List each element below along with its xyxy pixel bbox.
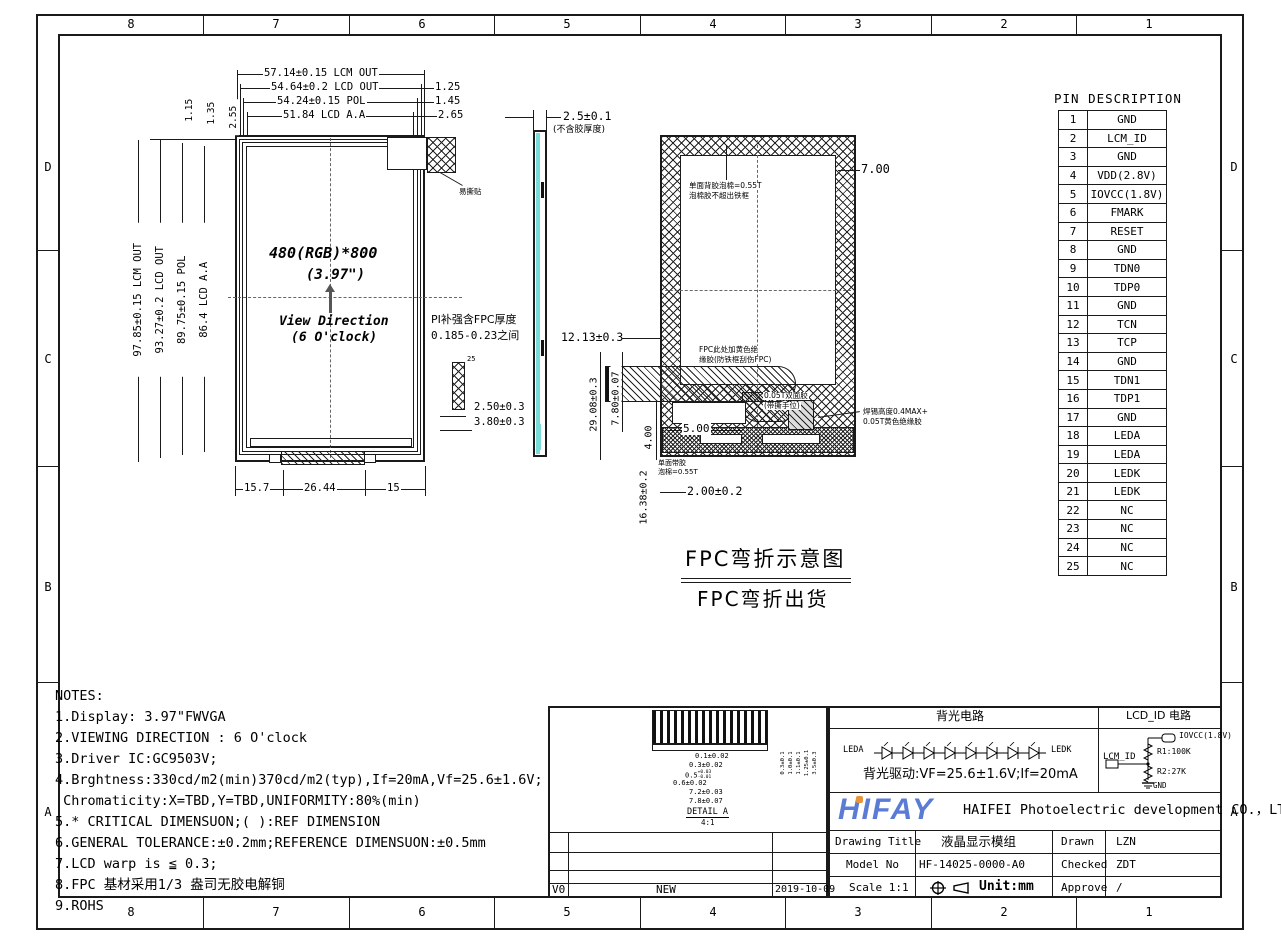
tear-sticker-label: 易撕贴 (458, 188, 483, 196)
fpc-note-1: FPC此处加黄色绝 (698, 346, 759, 354)
grid-col-label: 4 (693, 17, 733, 31)
centerline-h (228, 297, 462, 298)
pin-name: LEDA (1088, 445, 1167, 464)
grid-row-label: C (1224, 352, 1244, 366)
pin-name: NC (1088, 538, 1167, 557)
backlight-header: 背光电路 (935, 710, 985, 723)
pin-row: 24NC (1059, 538, 1167, 557)
detail-vdim-4: 1.25±0.1 (804, 744, 810, 782)
pin-number: 9 (1059, 259, 1088, 278)
pin-name: TCN (1088, 315, 1167, 334)
pin-row: 25NC (1059, 557, 1167, 576)
dim-380: 3.80±0.3 (473, 417, 526, 429)
drawing-title-label: Drawing Title (834, 836, 922, 848)
dim-thickness: 2.5±0.1 (562, 110, 612, 123)
grid-col-label: 2 (984, 17, 1024, 31)
pin-row: 8GND (1059, 241, 1167, 260)
note-line: 9.ROHS (55, 896, 543, 917)
pin-name: LEDK (1088, 464, 1167, 483)
pin-number: 21 (1059, 482, 1088, 501)
pin-number: 10 (1059, 278, 1088, 297)
pin-number: 2 (1059, 129, 1088, 148)
revision-date: 2019-10-09 (774, 884, 836, 895)
detail-vdim-2: 1.0±0.1 (788, 744, 794, 782)
pin-row: 4VDD(2.8V) (1059, 166, 1167, 185)
pin-name: GND (1088, 408, 1167, 427)
dim-corner-135: 1.35 (207, 95, 217, 131)
dim-lcd-out-h: 93.27±0.2 LCD OUT (155, 223, 167, 377)
grid-row-label: B (1224, 580, 1244, 594)
grid-col-label: 1 (1129, 905, 1169, 919)
grid-col-label: 6 (402, 17, 442, 31)
pin-number: 18 (1059, 427, 1088, 446)
dim-corner-255: 2.55 (229, 99, 239, 135)
pin-number: 15 (1059, 371, 1088, 390)
detail-dim-1: 0.1±0.02 (694, 753, 730, 761)
dim-1213: 12.13±0.3 (560, 331, 624, 344)
pin-number: 25 (1059, 557, 1088, 576)
pin-name: RESET (1088, 222, 1167, 241)
revision-desc: NEW (655, 884, 677, 896)
dim-lcd-out-w: 54.64±0.2 LCD OUT (270, 82, 379, 94)
model-no-value: HF-14025-0000-A0 (918, 859, 1026, 871)
backlight-drive: 背光驱动:VF=25.6±1.6V;If=20mA (862, 768, 1079, 782)
scale-label: Scale 1:1 (848, 882, 910, 894)
dim-1638: 16.38±0.2 (639, 451, 650, 545)
foam-note-1: 单面背胶泡棉=0.55T (688, 182, 763, 190)
pin-number: 7 (1059, 222, 1088, 241)
grid-col-label: 3 (838, 17, 878, 31)
grid-col-label: 7 (256, 17, 296, 31)
pin-number: 8 (1059, 241, 1088, 260)
dim-lcm-out-h: 97.85±0.15 LCM OUT (133, 223, 145, 377)
model-no-label: Model No (845, 859, 900, 871)
lcmid-label: LCM_ID (1102, 753, 1137, 763)
note-line: 6.GENERAL TOLERANCE:±0.2mm;REFERENCE DIM… (55, 833, 543, 854)
pin-row: 16TDP1 (1059, 389, 1167, 408)
pin-row: 12TCN (1059, 315, 1167, 334)
company-logo: HIFAY (838, 793, 934, 827)
grid-row-label: D (1224, 160, 1244, 174)
dim-aa-h: 86.4 LCD A.A (199, 223, 211, 377)
fpc-note-2: 缘胶(防铁框刮伤FPC) (698, 356, 772, 364)
drawing-title-value: 液晶显示模组 (940, 835, 1017, 849)
dim-700: 7.00 (860, 163, 891, 176)
projection-symbol (930, 881, 972, 895)
pin-name: TDN1 (1088, 371, 1167, 390)
pin-number: 5 (1059, 185, 1088, 204)
dim-250: 2.50±0.3 (473, 402, 526, 414)
led-chain-diagram (874, 742, 1046, 760)
dim-aa-w: 51.84 LCD A.A (282, 110, 366, 122)
pin-row: 6FMARK (1059, 203, 1167, 222)
note-line: 5.* CRITICAL DIMENSUON;( ):REF DIMENSION (55, 812, 543, 833)
pin-name: FMARK (1088, 203, 1167, 222)
pin-name: NC (1088, 501, 1167, 520)
dim-right-265: 2.65 (437, 110, 464, 122)
pin-name: TDP0 (1088, 278, 1167, 297)
pin-number: 24 (1059, 538, 1088, 557)
pin-row: 22NC (1059, 501, 1167, 520)
dim-200: 2.00±0.2 (686, 485, 743, 498)
grid-col-label: 4 (693, 905, 733, 919)
note-line: 4.Brghtness:330cd/m2(min)370cd/m2(typ),I… (55, 770, 543, 791)
dim-pol-w: 54.24±0.15 POL (276, 96, 367, 108)
pin-number: 19 (1059, 445, 1088, 464)
pin-name: NC (1088, 557, 1167, 576)
panel-size: (3.97") (305, 268, 366, 283)
pin-name: GND (1088, 148, 1167, 167)
pin-row: 14GND (1059, 352, 1167, 371)
fpc-stiffener (452, 362, 465, 410)
r2-label: R2:27K (1156, 768, 1187, 777)
notes-block: NOTES:1.Display: 3.97"FWVGA2.VIEWING DIR… (55, 686, 543, 917)
pin-row: 18LEDA (1059, 427, 1167, 446)
gnd-label: GND (1152, 782, 1168, 790)
pin-name: NC (1088, 520, 1167, 539)
dim-right-145: 1.45 (434, 96, 461, 108)
pin-row: 10TDP0 (1059, 278, 1167, 297)
pin-number: 17 (1059, 408, 1088, 427)
tape-note-2: (带撕手位) (763, 402, 801, 410)
pin-row: 19LEDA (1059, 445, 1167, 464)
stiffener-pin25: 25 (466, 356, 476, 364)
pi-note-2: 0.185-0.23之间 (430, 330, 520, 342)
pin-name: GND (1088, 352, 1167, 371)
pin-number: 1 (1059, 111, 1088, 130)
pin-row: 11GND (1059, 296, 1167, 315)
fpc-fold-title: FPC弯折示意图 (684, 548, 846, 571)
pin-name: GND (1088, 111, 1167, 130)
pin-number: 14 (1059, 352, 1088, 371)
grid-col-label: 5 (547, 17, 587, 31)
approve-label: Approve (1060, 882, 1108, 894)
foam-note-2: 泡棉胶不超出铁框 (688, 192, 750, 200)
pin-row: 13TCP (1059, 334, 1167, 353)
pin-row: 3GND (1059, 148, 1167, 167)
detail-vdim-5: 3.5±0.3 (812, 744, 818, 782)
pin-row: 9TDN0 (1059, 259, 1167, 278)
dim-780: 7.80±0.07 (611, 355, 622, 443)
pin-number: 13 (1059, 334, 1088, 353)
note-line: 7.LCD warp is ≦ 0.3; (55, 854, 543, 875)
pin-row: 17GND (1059, 408, 1167, 427)
pin-name: LCM_ID (1088, 129, 1167, 148)
tear-sticker (427, 137, 456, 173)
detail-a-comb (652, 710, 768, 744)
note-line: 3.Driver IC:GC9503V; (55, 749, 543, 770)
dim-bottom-2644: 26.44 (303, 483, 337, 495)
pin-name: LEDK (1088, 482, 1167, 501)
dim-pol-h: 89.75±0.15 POL (177, 223, 189, 377)
fpc-ship-title: FPC弯折出货 (696, 588, 830, 610)
pin-name: TDN0 (1088, 259, 1167, 278)
solder-note-1: 焊锡高度0.4MAX+ (862, 408, 929, 416)
pin-table-body: 1GND2LCM_ID3GND4VDD(2.8V)5IOVCC(1.8V)6FM… (1059, 111, 1167, 576)
detail-dim-4: 0.6±0.02 (672, 780, 708, 788)
pin-row: 1GND (1059, 111, 1167, 130)
grid-col-label: 5 (547, 905, 587, 919)
grid-row-label: C (38, 352, 58, 366)
pin-number: 23 (1059, 520, 1088, 539)
detail-dim-5: 7.2±0.03 (688, 789, 724, 797)
pin-name: TCP (1088, 334, 1167, 353)
grid-col-label: 2 (984, 905, 1024, 919)
drawn-value: LZN (1115, 836, 1137, 848)
company-name: HAIFEI Photoelectric development CO.，LTD (962, 803, 1281, 818)
pi-note-1: PI补强含FPC厚度 (430, 314, 518, 326)
detail-dim-2: 0.3±0.02 (688, 762, 724, 770)
pin-name: IOVCC(1.8V) (1088, 185, 1167, 204)
drawing-sheet: 8 7 6 5 4 3 2 1 8 7 6 5 4 3 2 1 D C B A … (0, 0, 1281, 945)
iovcc-label: IOVCC(1.8V) (1178, 732, 1233, 741)
revision-rev: V0 (551, 884, 566, 896)
pin-row: 21LEDK (1059, 482, 1167, 501)
pin-number: 4 (1059, 166, 1088, 185)
pin-number: 20 (1059, 464, 1088, 483)
dim-right-125: 1.25 (434, 82, 461, 94)
dim-bottom-15: 15 (386, 483, 401, 495)
detail-vdim-3: 1.1±0.1 (796, 744, 802, 782)
grid-col-label: 8 (111, 17, 151, 31)
fpc-connector (281, 451, 365, 465)
pin-name: LEDA (1088, 427, 1167, 446)
pin-name: GND (1088, 296, 1167, 315)
note-line: 2.VIEWING DIRECTION : 6 O'clock (55, 728, 543, 749)
note-line: 1.Display: 3.97"FWVGA (55, 707, 543, 728)
thickness-note: (不含胶厚度) (552, 126, 606, 136)
leda-label: LEDA (842, 746, 864, 755)
lcdid-header: LCD_ID 电路 (1125, 710, 1192, 722)
note-line: NOTES: (55, 686, 543, 707)
drawn-label: Drawn (1060, 836, 1095, 848)
pin-row: 5IOVCC(1.8V) (1059, 185, 1167, 204)
grid-col-label: 1 (1129, 17, 1169, 31)
pin-row: 23NC (1059, 520, 1167, 539)
foam-b-note-1: 单面带胶 (657, 460, 687, 468)
ledk-label: LEDK (1050, 746, 1072, 755)
grid-row-label: D (38, 160, 58, 174)
view-direction-1: View Direction (278, 315, 390, 329)
pin-row: 15TDN1 (1059, 371, 1167, 390)
pin-number: 3 (1059, 148, 1088, 167)
detail-dim-6: 7.8±0.07 (688, 798, 724, 806)
checked-label: Checked (1060, 859, 1108, 871)
pin-row: 20LEDK (1059, 464, 1167, 483)
dim-lcm-out-w: 57.14±0.15 LCM OUT (263, 68, 379, 80)
dim-2908: 29.08±0.3 (589, 361, 600, 449)
solder-note-2: 0.05T黄色绝缘胶 (862, 418, 923, 426)
dim-500: 5.00 (682, 423, 711, 435)
pin-name: TDP1 (1088, 389, 1167, 408)
pin-table-title: PIN DESCRIPTION (1053, 92, 1183, 106)
detail-a-scale: 4:1 (700, 819, 716, 827)
r1-label: R1:100K (1156, 748, 1192, 757)
pin-number: 6 (1059, 203, 1088, 222)
panel-resolution: 480(RGB)*800 (268, 245, 378, 262)
foam-b-note-2: 泡棉=0.55T (657, 469, 699, 477)
tape-note-1: 0.05T双面胶 (763, 392, 809, 400)
pin-number: 11 (1059, 296, 1088, 315)
dim-corner-115: 1.15 (185, 92, 195, 128)
unit-value: Unit:mm (978, 880, 1035, 894)
pin-name: GND (1088, 241, 1167, 260)
grid-row-label: B (38, 580, 58, 594)
pin-number: 16 (1059, 389, 1088, 408)
note-line: Chromaticity:X=TBD,Y=TBD,UNIFORMITY:80%(… (55, 791, 543, 812)
pin-row: 2LCM_ID (1059, 129, 1167, 148)
approve-value: / (1115, 882, 1124, 894)
pin-table: 1GND2LCM_ID3GND4VDD(2.8V)5IOVCC(1.8V)6FM… (1058, 110, 1167, 576)
pin-number: 22 (1059, 501, 1088, 520)
logo-dot (856, 796, 863, 803)
detail-vdim-1: 0.3±0.1 (780, 744, 786, 782)
dim-bottom-157: 15.7 (243, 483, 270, 495)
pin-number: 12 (1059, 315, 1088, 334)
pin-name: VDD(2.8V) (1088, 166, 1167, 185)
note-line: 8.FPC 基材采用1/3 盎司无胶电解铜 (55, 875, 543, 896)
detail-a-label: DETAIL A (686, 808, 729, 818)
view-direction-2: (6 O'clock) (290, 331, 378, 345)
checked-value: ZDT (1115, 859, 1137, 871)
grid-col-label: 3 (838, 905, 878, 919)
pin-row: 7RESET (1059, 222, 1167, 241)
